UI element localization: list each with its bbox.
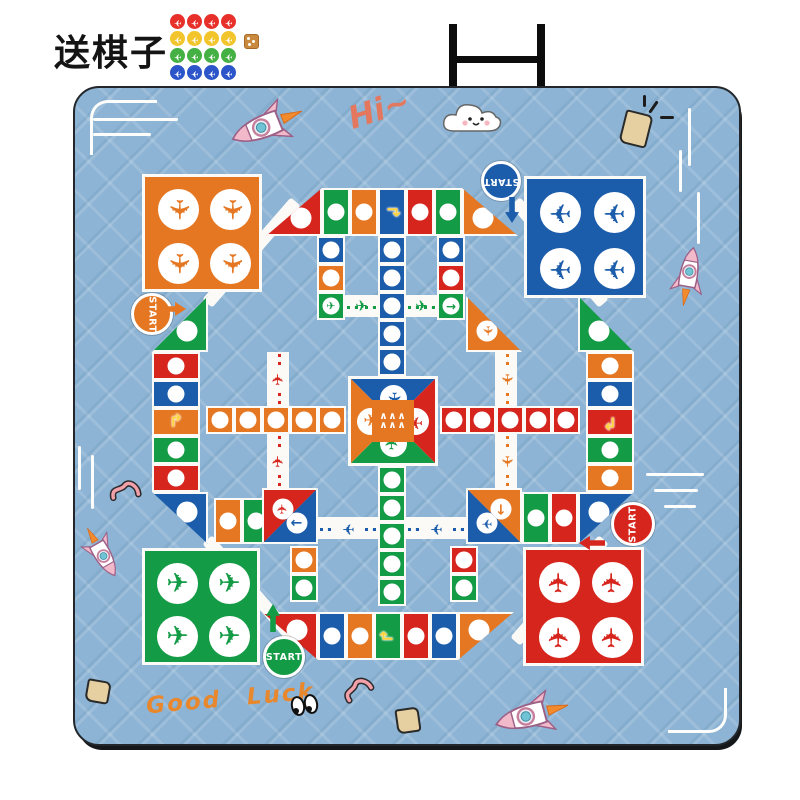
hangar-plane-circle: ✈ xyxy=(540,248,581,289)
board-cell: ✈ xyxy=(317,292,345,320)
corner-bracket xyxy=(668,688,727,733)
board-cell xyxy=(468,406,496,434)
plane-icon: ✈ xyxy=(191,51,199,60)
board-cell xyxy=(437,236,465,264)
board-cell: → xyxy=(437,292,465,320)
cell-icon-wrap xyxy=(602,470,619,487)
chess-piece-token: ✈ xyxy=(187,65,202,80)
cell-circle xyxy=(556,510,573,527)
plane-icon: ✈ xyxy=(208,34,216,43)
shortcut-road: ✈ xyxy=(495,352,517,406)
dice-dot xyxy=(252,40,255,43)
cell-circle xyxy=(248,513,265,530)
cell-circle xyxy=(168,358,185,375)
plane-icon: ✈ xyxy=(191,17,199,26)
board-cell xyxy=(434,188,462,236)
plane-icon: ✈ xyxy=(165,252,192,275)
cell-circle xyxy=(602,358,619,375)
stand-bar xyxy=(449,56,545,63)
board-cell xyxy=(378,320,406,348)
cell-icon-wrap xyxy=(384,528,401,545)
board-cell xyxy=(152,436,200,464)
cell-circle xyxy=(220,513,237,530)
center-core: ∧∧∧∧∧∧ xyxy=(372,400,414,442)
board-cell xyxy=(378,348,406,376)
cell-circle xyxy=(268,412,285,429)
cell-icon-wrap xyxy=(296,412,313,429)
board-cell xyxy=(378,466,406,494)
cell-circle xyxy=(502,412,519,429)
cell-circle xyxy=(443,270,460,287)
board-cell xyxy=(378,494,406,522)
cell-circle xyxy=(384,584,401,601)
plane-icon: ✈ xyxy=(603,199,626,226)
plane-icon: ✈ xyxy=(481,325,494,336)
board-cell xyxy=(152,352,200,380)
hangar-G: ✈✈✈✈ xyxy=(142,548,260,665)
plane-icon: ✈ xyxy=(277,504,290,515)
board-cell xyxy=(378,292,406,320)
speed-line xyxy=(78,446,81,490)
cell-circle xyxy=(240,412,257,429)
start-label: START xyxy=(483,176,519,187)
plane-icon: ✈ xyxy=(415,299,428,314)
board-cell xyxy=(586,464,634,492)
plane-icon: ✈ xyxy=(225,68,233,77)
plane-icon: ✈ xyxy=(498,373,513,386)
chess-piece-token: ✈ xyxy=(187,31,202,46)
cell-icon-wrap xyxy=(323,242,340,259)
shortcut-road: ✈ xyxy=(267,352,289,406)
plane-icon: ✈ xyxy=(208,68,216,77)
cloud-doodle xyxy=(440,96,504,144)
cell-icon-wrap xyxy=(446,412,463,429)
cell-icon-wrap xyxy=(296,580,313,597)
hangar-plane-circle: ✈ xyxy=(592,562,633,603)
product-photo: 送棋子 ✈✈✈✈✈✈✈✈✈✈✈✈✈✈✈✈ Hi~ Good Luck xyxy=(0,0,800,800)
chess-piece-token: ✈ xyxy=(170,14,185,29)
start-label: START xyxy=(147,296,158,332)
paper-scrap xyxy=(394,706,421,734)
cell-circle xyxy=(456,552,473,569)
cell-circle xyxy=(384,556,401,573)
board-cell xyxy=(378,522,406,550)
cell-icon-wrap xyxy=(384,472,401,489)
cell-icon-wrap: ↱ xyxy=(385,204,399,221)
board-cell xyxy=(322,188,350,236)
chess-piece-token: ✈ xyxy=(221,48,236,63)
start-label: START xyxy=(628,506,639,542)
cell-circle xyxy=(440,204,457,221)
cell-circle xyxy=(446,412,463,429)
plane-icon: ✈ xyxy=(326,301,335,312)
cell-icon-wrap xyxy=(324,628,341,645)
arrow-icon: → xyxy=(494,503,508,515)
cell-icon-wrap xyxy=(384,298,401,315)
chess-piece-token: ✈ xyxy=(221,14,236,29)
cell-circle xyxy=(384,270,401,287)
cell-icon-wrap xyxy=(384,242,401,259)
cell-circle xyxy=(408,628,425,645)
hangar-plane-circle: ✈ xyxy=(210,189,251,230)
hangar-plane-circle: ✈ xyxy=(209,563,250,604)
cell-circle: ✈ xyxy=(323,298,340,315)
chess-piece-token: ✈ xyxy=(221,31,236,46)
hangar-plane-circle: ✈ xyxy=(158,189,199,230)
plane-icon: ✈ xyxy=(165,198,192,221)
hangar-R: ✈✈✈✈ xyxy=(523,547,644,666)
board-cell xyxy=(522,492,550,544)
cell-icon-wrap xyxy=(602,358,619,375)
cell-icon-wrap xyxy=(602,442,619,459)
start-label: START xyxy=(266,652,302,663)
plane-icon: ✈ xyxy=(174,51,182,60)
board-cell xyxy=(214,498,242,544)
cell-circle xyxy=(456,580,473,597)
board-cell xyxy=(378,550,406,578)
plane-icon: ✈ xyxy=(482,516,493,529)
cell-icon-wrap xyxy=(324,412,341,429)
cell-circle xyxy=(384,528,401,545)
cell-circle xyxy=(352,628,369,645)
spark-line xyxy=(643,95,646,107)
board-cell: ↱ xyxy=(586,408,634,436)
cell-icon-wrap xyxy=(323,270,340,287)
cell-icon-wrap xyxy=(502,412,519,429)
hangar-plane-circle: ✈ xyxy=(209,616,250,657)
plane-icon: ✈ xyxy=(225,51,233,60)
cell-circle xyxy=(602,386,619,403)
plane-icon: ✈ xyxy=(191,68,199,77)
plane-icon: ✈ xyxy=(208,51,216,60)
plane-icon: ✈ xyxy=(225,34,233,43)
board-cell xyxy=(290,574,318,602)
corner-bracket xyxy=(90,100,157,155)
speed-line xyxy=(664,505,696,508)
plane-icon: ✈ xyxy=(174,17,182,26)
plane-icon: ✈ xyxy=(217,252,244,275)
board-cell xyxy=(317,236,345,264)
cell-icon-wrap: → xyxy=(443,298,460,315)
cell-circle xyxy=(602,470,619,487)
chess-piece-token: ✈ xyxy=(204,31,219,46)
chess-piece-token: ✈ xyxy=(187,14,202,29)
cell-circle xyxy=(558,412,575,429)
cell-icon-wrap xyxy=(443,270,460,287)
cell-icon-wrap xyxy=(384,270,401,287)
center-square: ✈✈✈✈∧∧∧∧∧∧ xyxy=(348,376,438,466)
cell-circle xyxy=(474,412,491,429)
plane-icon: ✈ xyxy=(549,199,572,226)
cell-circle xyxy=(168,386,185,403)
cell-icon-wrap xyxy=(212,412,229,429)
shortcut-road: ✈ xyxy=(406,517,466,539)
board-cell xyxy=(318,406,346,434)
hangar-plane-circle: ✈ xyxy=(539,562,580,603)
turn-arrow-icon: ↱ xyxy=(169,414,183,431)
board-cell xyxy=(346,612,374,660)
board-cell xyxy=(262,406,290,434)
chess-piece-token: ✈ xyxy=(187,48,202,63)
cell-icon-wrap xyxy=(168,442,185,459)
cell-circle xyxy=(602,442,619,459)
center-core-pattern: ∧∧∧ xyxy=(379,421,406,430)
turn-arrow-icon: ↱ xyxy=(603,414,617,431)
board-cell xyxy=(406,188,434,236)
cell-icon-wrap xyxy=(384,354,401,371)
plane-icon: ✈ xyxy=(270,373,285,386)
board-cell xyxy=(290,546,318,574)
chess-piece-token: ✈ xyxy=(204,14,219,29)
start-badge-O: START xyxy=(131,293,173,335)
plane-icon: ✈ xyxy=(342,521,355,536)
hangar-plane-circle: ✈ xyxy=(592,617,633,658)
cell-icon-wrap xyxy=(384,326,401,343)
cell-circle xyxy=(324,412,341,429)
chess-piece-token: ✈ xyxy=(170,31,185,46)
hangar-plane-circle: ✈ xyxy=(157,563,198,604)
hangar-plane-circle: ✈ xyxy=(157,616,198,657)
board-cell xyxy=(586,436,634,464)
speed-line xyxy=(697,192,700,244)
cell-circle: → xyxy=(443,298,460,315)
cell-circle xyxy=(436,628,453,645)
cell-icon-wrap xyxy=(443,242,460,259)
board-cell: ↱ xyxy=(374,612,402,660)
cell-icon-wrap xyxy=(352,628,369,645)
cell-circle xyxy=(168,470,185,487)
plane-icon: ✈ xyxy=(166,570,189,597)
cell-icon-wrap: ↱ xyxy=(603,414,617,431)
plane-icon: ✈ xyxy=(546,626,573,649)
plane-icon: ✈ xyxy=(174,34,182,43)
cell-icon-wrap xyxy=(530,412,547,429)
cell-circle xyxy=(530,412,547,429)
dice-dot xyxy=(247,37,250,40)
hangar-O: ✈✈✈✈ xyxy=(142,174,262,292)
board-cell xyxy=(440,406,468,434)
board-cell xyxy=(552,406,580,434)
board-cell xyxy=(318,612,346,660)
cell-circle xyxy=(356,204,373,221)
board-cell xyxy=(550,492,578,544)
shortcut-road: ✈ xyxy=(495,434,517,488)
cell-icon-wrap xyxy=(436,628,453,645)
board-cell xyxy=(586,380,634,408)
speed-line xyxy=(688,108,691,166)
shortcut-road: ✈ xyxy=(318,517,378,539)
turn-arrow-icon: ↱ xyxy=(384,205,401,219)
board-cell xyxy=(450,546,478,574)
board-cell xyxy=(378,578,406,606)
start-badge-G: START xyxy=(263,636,305,678)
plane-icon: ✈ xyxy=(603,255,626,282)
cell-circle xyxy=(384,242,401,259)
turn-arrow-icon: ↱ xyxy=(380,629,397,643)
plane-icon: ✈ xyxy=(546,571,573,594)
plane-icon: ✈ xyxy=(225,17,233,26)
spark-line xyxy=(660,116,674,119)
cell-circle xyxy=(212,412,229,429)
cell-circle xyxy=(328,204,345,221)
cell-circle xyxy=(296,552,313,569)
cell-icon-wrap xyxy=(296,552,313,569)
arrow-icon: → xyxy=(291,516,303,530)
cell-circle xyxy=(443,242,460,259)
cell-icon-wrap: ✈ xyxy=(323,298,340,315)
board-cell xyxy=(234,406,262,434)
speed-line xyxy=(679,150,682,192)
chess-piece-token: ✈ xyxy=(221,65,236,80)
cell-icon-wrap xyxy=(456,580,473,597)
cell-circle xyxy=(296,412,313,429)
cell-icon-wrap xyxy=(268,412,285,429)
cell-icon-wrap xyxy=(328,204,345,221)
dice-dot xyxy=(248,43,251,46)
speed-line xyxy=(91,455,94,509)
cell-circle xyxy=(412,204,429,221)
chess-piece-token: ✈ xyxy=(170,65,185,80)
board-cell xyxy=(402,612,430,660)
cell-icon-wrap xyxy=(168,386,185,403)
cell-circle xyxy=(324,628,341,645)
cell-icon-wrap xyxy=(474,412,491,429)
hangar-plane-circle: ✈ xyxy=(539,617,580,658)
chess-piece-token: ✈ xyxy=(204,48,219,63)
start-badge-R: START xyxy=(611,502,655,546)
cell-icon-wrap xyxy=(456,552,473,569)
cell-icon-wrap: ↱ xyxy=(169,414,183,431)
cell-icon-wrap: ↱ xyxy=(381,628,395,645)
hangar-plane-circle: ✈ xyxy=(594,248,635,289)
shortcut-road: ✈ xyxy=(267,434,289,488)
hangar-plane-circle: ✈ xyxy=(210,243,251,284)
cell-icon-wrap xyxy=(168,358,185,375)
plane-icon: ✈ xyxy=(549,255,572,282)
board-cell: ↱ xyxy=(378,188,406,236)
paper-scrap xyxy=(84,678,112,705)
hangar-plane-circle: ✈ xyxy=(158,243,199,284)
cell-icon-wrap xyxy=(412,204,429,221)
shortcut-road: ✈ xyxy=(406,295,437,317)
board-cell xyxy=(378,264,406,292)
board-cell xyxy=(350,188,378,236)
plane-icon: ✈ xyxy=(191,34,199,43)
plane-icon: ✈ xyxy=(498,455,513,468)
cell-icon-wrap xyxy=(384,556,401,573)
start-badge-B: START xyxy=(481,161,521,201)
shortcut-road: ✈ xyxy=(345,295,378,317)
cell-icon-wrap xyxy=(240,412,257,429)
plane-icon: ✈ xyxy=(218,570,241,597)
chess-piece-token: ✈ xyxy=(170,48,185,63)
board-cell: ↱ xyxy=(152,408,200,436)
hangar-B: ✈✈✈✈ xyxy=(524,176,646,298)
cell-icon-wrap xyxy=(602,386,619,403)
cell-circle xyxy=(384,500,401,517)
promo-gift-text: 送棋子 xyxy=(54,24,168,76)
cell-icon-wrap xyxy=(384,500,401,517)
cell-icon-wrap xyxy=(440,204,457,221)
board-cell xyxy=(152,464,200,492)
cell-icon-wrap xyxy=(248,513,265,530)
hangar-plane-circle: ✈ xyxy=(594,192,635,233)
worm-doodle xyxy=(105,475,146,515)
cell-icon-wrap xyxy=(558,412,575,429)
plane-icon: ✈ xyxy=(218,623,241,650)
plane-icon: ✈ xyxy=(217,198,244,221)
cell-icon-wrap xyxy=(384,584,401,601)
board-cell xyxy=(317,264,345,292)
board-cell xyxy=(437,264,465,292)
arrow-icon: → xyxy=(446,300,456,312)
plane-icon: ✈ xyxy=(430,521,443,536)
cell-icon-wrap xyxy=(556,510,573,527)
plane-icon: ✈ xyxy=(270,455,285,468)
board-cell xyxy=(378,236,406,264)
googly-eyes-doodle xyxy=(289,692,321,724)
cell-circle xyxy=(323,242,340,259)
cell-icon-wrap xyxy=(356,204,373,221)
dice-icon xyxy=(244,34,259,49)
cell-circle xyxy=(528,510,545,527)
speed-line xyxy=(646,473,704,476)
chess-piece-token: ✈ xyxy=(204,65,219,80)
cell-circle xyxy=(384,298,401,315)
cell-icon-wrap xyxy=(168,470,185,487)
plane-icon: ✈ xyxy=(599,571,626,594)
plane-icon: ✈ xyxy=(208,17,216,26)
cell-circle xyxy=(168,442,185,459)
board-cell xyxy=(430,612,458,660)
cell-icon-wrap xyxy=(220,513,237,530)
board-cell xyxy=(524,406,552,434)
plane-icon: ✈ xyxy=(174,68,182,77)
cell-circle xyxy=(384,326,401,343)
cell-icon-wrap xyxy=(528,510,545,527)
plane-icon: ✈ xyxy=(166,623,189,650)
speed-line xyxy=(654,489,698,492)
board-cell xyxy=(496,406,524,434)
board-cell xyxy=(152,380,200,408)
board-cell xyxy=(586,352,634,380)
cell-circle xyxy=(323,270,340,287)
cell-circle xyxy=(296,580,313,597)
cell-circle xyxy=(384,354,401,371)
board-cell xyxy=(450,574,478,602)
plane-icon: ✈ xyxy=(599,626,626,649)
board-cell xyxy=(206,406,234,434)
cell-icon-wrap xyxy=(408,628,425,645)
cell-circle xyxy=(384,472,401,489)
hangar-plane-circle: ✈ xyxy=(540,192,581,233)
plane-icon: ✈ xyxy=(355,299,368,314)
board-cell xyxy=(290,406,318,434)
